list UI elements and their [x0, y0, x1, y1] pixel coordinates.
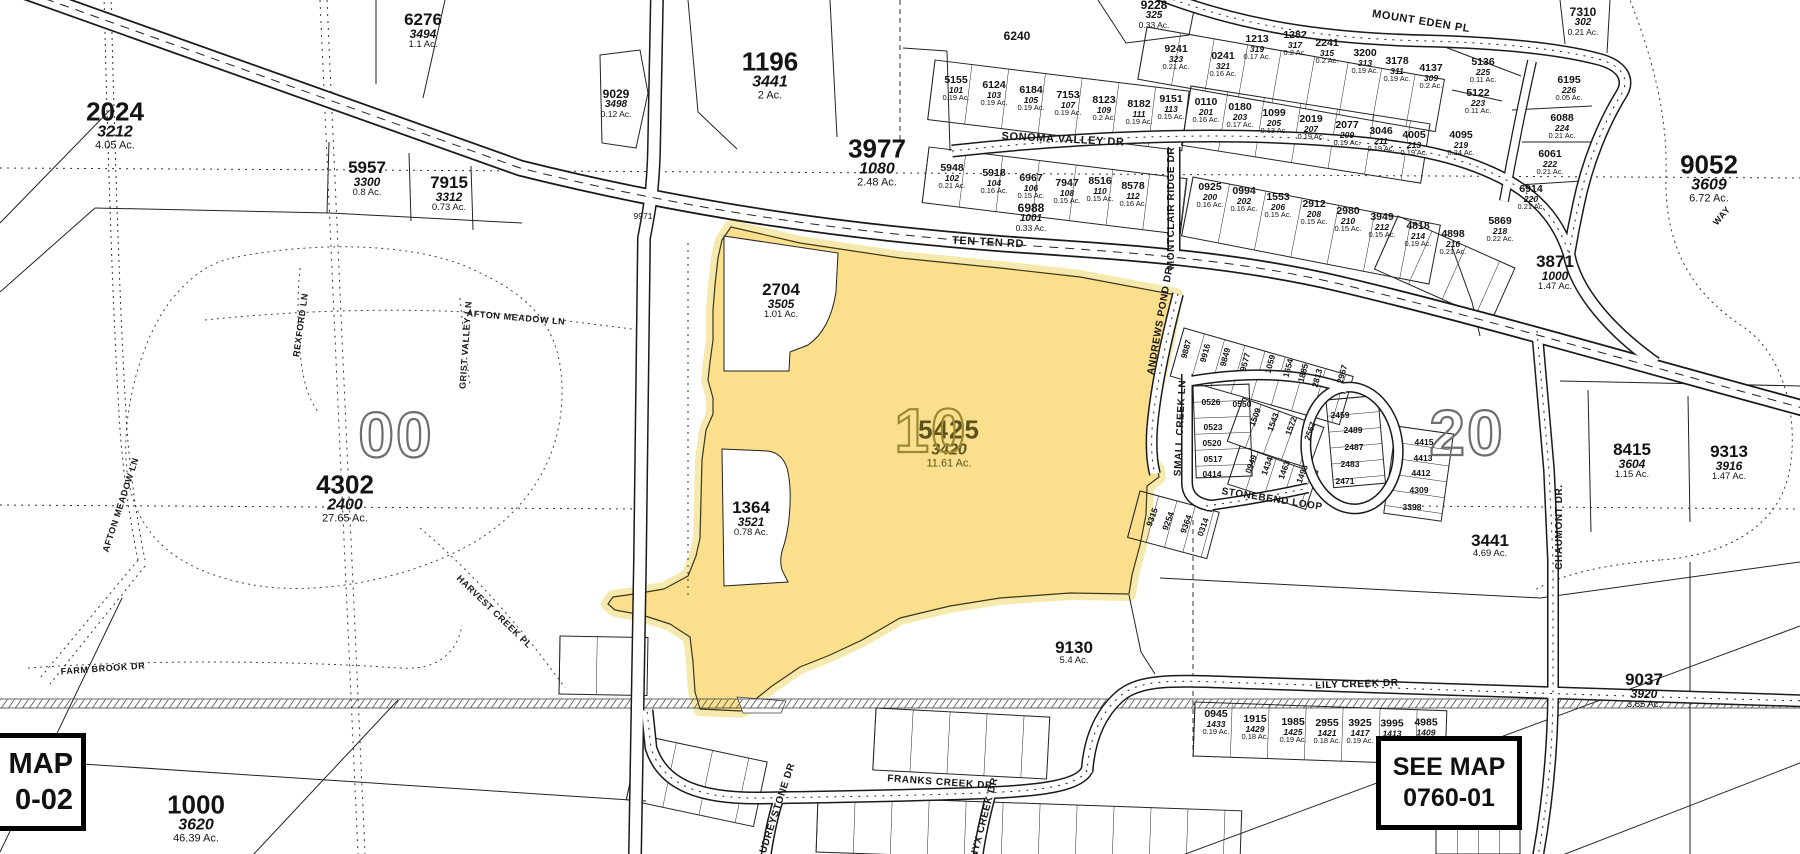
see-map-right-line1: SEE MAP: [1381, 752, 1517, 783]
parcel-island-1364: [722, 449, 790, 586]
see-map-link-left[interactable]: MAP 0-02: [0, 733, 86, 831]
see-map-left-line2: 0-02: [15, 782, 73, 818]
see-map-right-line2: 0760-01: [1381, 783, 1517, 814]
parcel-map-canvas[interactable]: 5425 3420 11.61 Ac. 202432124.05 Ac.6276…: [0, 0, 1800, 854]
see-map-left-line1: MAP: [9, 746, 73, 782]
hatched-line: [0, 699, 1800, 708]
map-geometry: [0, 0, 1800, 854]
see-map-link-right[interactable]: SEE MAP 0760-01: [1376, 736, 1522, 830]
